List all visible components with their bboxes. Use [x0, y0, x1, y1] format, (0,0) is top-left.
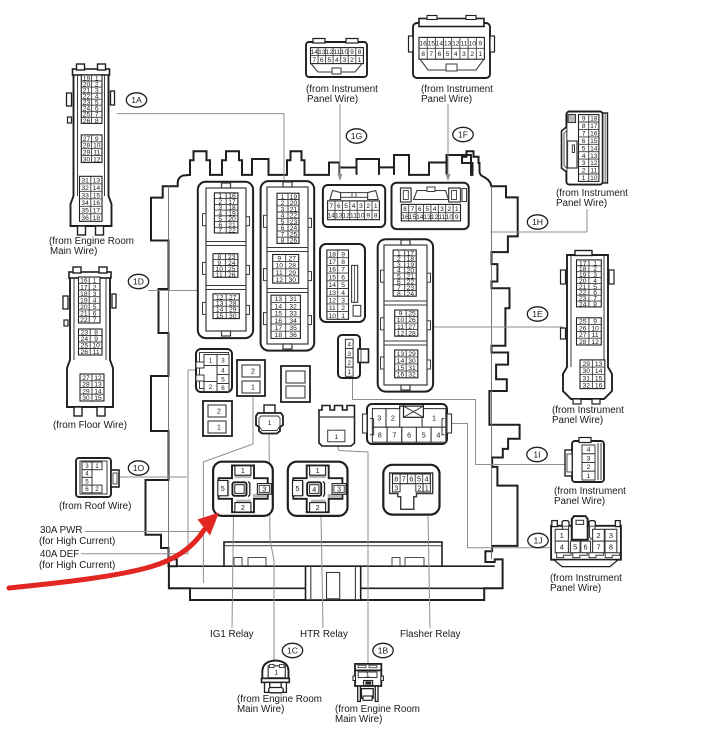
svg-text:2: 2 — [341, 305, 345, 312]
svg-text:30: 30 — [408, 358, 416, 365]
svg-text:5: 5 — [573, 543, 577, 552]
svg-text:1F: 1F — [458, 130, 468, 140]
svg-text:10: 10 — [341, 49, 349, 56]
svg-text:4: 4 — [352, 203, 356, 210]
svg-text:7: 7 — [329, 203, 333, 210]
svg-text:9: 9 — [341, 251, 345, 258]
svg-text:16: 16 — [329, 267, 337, 274]
svg-text:1: 1 — [366, 672, 370, 679]
svg-text:IG1 Relay: IG1 Relay — [210, 629, 254, 640]
svg-text:Panel Wire): Panel Wire) — [421, 94, 472, 105]
svg-text:5: 5 — [341, 282, 345, 289]
svg-text:6: 6 — [584, 543, 588, 552]
svg-text:13: 13 — [590, 153, 598, 160]
svg-text:16: 16 — [93, 200, 101, 207]
svg-text:1A: 1A — [131, 95, 142, 105]
svg-text:2: 2 — [217, 409, 221, 416]
svg-text:6: 6 — [221, 385, 225, 392]
svg-text:11: 11 — [461, 40, 468, 47]
svg-text:4: 4 — [312, 485, 316, 494]
svg-text:1C: 1C — [287, 646, 298, 656]
svg-text:9: 9 — [478, 40, 482, 47]
svg-text:6: 6 — [582, 138, 586, 145]
svg-text:1: 1 — [241, 466, 245, 475]
svg-text:1B: 1B — [378, 646, 389, 656]
svg-text:14: 14 — [436, 40, 444, 47]
svg-text:Panel Wire): Panel Wire) — [550, 583, 601, 594]
svg-text:1E: 1E — [532, 309, 543, 319]
svg-text:16: 16 — [595, 382, 603, 389]
svg-text:17: 17 — [275, 325, 283, 332]
svg-text:13: 13 — [595, 361, 603, 368]
svg-text:7: 7 — [218, 228, 222, 235]
svg-text:6: 6 — [337, 203, 341, 210]
svg-text:(from Roof Wire): (from Roof Wire) — [59, 501, 131, 512]
svg-text:15: 15 — [590, 138, 598, 145]
svg-text:24: 24 — [579, 301, 587, 308]
svg-text:11: 11 — [590, 168, 597, 175]
svg-text:10: 10 — [468, 40, 476, 47]
svg-text:34: 34 — [81, 200, 89, 207]
svg-text:16: 16 — [419, 40, 427, 47]
svg-text:12: 12 — [591, 339, 599, 346]
svg-text:22: 22 — [80, 317, 88, 324]
svg-text:3: 3 — [462, 51, 466, 58]
svg-text:28: 28 — [579, 339, 587, 346]
svg-text:3: 3 — [582, 160, 586, 167]
svg-text:33: 33 — [289, 311, 297, 318]
svg-text:2: 2 — [470, 51, 474, 58]
svg-text:2: 2 — [448, 206, 452, 213]
svg-text:4: 4 — [582, 153, 586, 160]
svg-text:7: 7 — [93, 317, 97, 324]
svg-text:5: 5 — [328, 57, 332, 64]
svg-text:6: 6 — [407, 431, 411, 440]
svg-text:2: 2 — [596, 531, 600, 540]
svg-text:10: 10 — [446, 214, 454, 221]
svg-text:14: 14 — [595, 368, 603, 375]
svg-text:3: 3 — [85, 463, 89, 470]
svg-text:5: 5 — [296, 484, 300, 493]
svg-text:26: 26 — [228, 272, 236, 279]
svg-text:8: 8 — [397, 291, 401, 298]
svg-text:35: 35 — [81, 208, 89, 215]
svg-text:10: 10 — [357, 212, 365, 219]
svg-text:12: 12 — [431, 214, 439, 221]
svg-text:27: 27 — [288, 256, 296, 263]
svg-text:6: 6 — [85, 486, 89, 493]
svg-text:11: 11 — [350, 212, 357, 219]
svg-text:28: 28 — [288, 263, 296, 270]
svg-text:1: 1 — [582, 175, 586, 182]
svg-text:2: 2 — [366, 203, 370, 210]
svg-text:2: 2 — [391, 413, 395, 422]
svg-text:17: 17 — [590, 123, 598, 130]
svg-text:30: 30 — [82, 395, 90, 402]
svg-text:3: 3 — [341, 298, 345, 305]
svg-text:8: 8 — [341, 259, 345, 266]
svg-text:2: 2 — [417, 483, 421, 492]
svg-text:Panel Wire): Panel Wire) — [552, 415, 603, 426]
svg-text:5: 5 — [582, 145, 586, 152]
svg-text:8: 8 — [378, 431, 382, 440]
svg-text:2: 2 — [316, 503, 320, 512]
svg-text:3: 3 — [343, 57, 347, 64]
svg-text:9: 9 — [350, 49, 354, 56]
svg-text:5: 5 — [417, 474, 421, 483]
svg-text:Panel Wire): Panel Wire) — [307, 94, 358, 105]
svg-text:22: 22 — [228, 228, 236, 235]
svg-text:30: 30 — [288, 277, 296, 284]
svg-text:4: 4 — [587, 447, 591, 454]
svg-text:9: 9 — [366, 212, 370, 219]
svg-text:16: 16 — [275, 318, 283, 325]
svg-text:7: 7 — [341, 267, 345, 274]
svg-text:15: 15 — [216, 313, 224, 320]
svg-text:1: 1 — [455, 206, 459, 213]
svg-text:9: 9 — [582, 116, 586, 123]
svg-text:1: 1 — [425, 483, 429, 492]
svg-text:11: 11 — [333, 49, 340, 56]
svg-text:29: 29 — [582, 361, 590, 368]
svg-text:2: 2 — [347, 360, 351, 367]
svg-text:1: 1 — [587, 473, 591, 480]
svg-text:2: 2 — [350, 57, 354, 64]
svg-text:Main Wire): Main Wire) — [335, 714, 382, 725]
svg-text:1H: 1H — [532, 217, 543, 227]
svg-text:3: 3 — [347, 351, 351, 358]
svg-text:1: 1 — [209, 357, 213, 364]
svg-text:31: 31 — [289, 296, 297, 303]
svg-text:3: 3 — [377, 413, 381, 422]
svg-text:5: 5 — [425, 206, 429, 213]
svg-text:7: 7 — [582, 131, 586, 138]
svg-text:2: 2 — [582, 168, 586, 175]
svg-text:33: 33 — [81, 193, 89, 200]
svg-text:13: 13 — [318, 49, 326, 56]
svg-text:12: 12 — [397, 330, 405, 337]
svg-text:32: 32 — [81, 185, 89, 192]
svg-text:12: 12 — [342, 212, 350, 219]
svg-text:8: 8 — [358, 49, 362, 56]
svg-text:1: 1 — [316, 466, 320, 475]
svg-text:1: 1 — [334, 434, 338, 441]
svg-text:30: 30 — [229, 313, 237, 320]
svg-text:15: 15 — [595, 375, 603, 382]
svg-text:14: 14 — [93, 185, 101, 192]
svg-text:5: 5 — [422, 431, 426, 440]
svg-text:4: 4 — [454, 51, 458, 58]
svg-text:5: 5 — [221, 376, 225, 383]
svg-text:34: 34 — [289, 318, 297, 325]
svg-text:31: 31 — [582, 375, 590, 382]
svg-text:9: 9 — [455, 214, 459, 221]
svg-text:8: 8 — [95, 118, 99, 125]
svg-text:32: 32 — [582, 382, 590, 389]
svg-text:3: 3 — [337, 485, 341, 494]
svg-text:31: 31 — [81, 178, 89, 185]
svg-text:5: 5 — [221, 484, 225, 493]
svg-text:Panel Wire): Panel Wire) — [556, 198, 607, 209]
svg-text:17: 17 — [329, 259, 337, 266]
svg-text:24: 24 — [407, 291, 415, 298]
svg-text:12: 12 — [93, 157, 101, 164]
svg-text:1: 1 — [95, 463, 99, 470]
svg-text:12: 12 — [452, 40, 460, 47]
svg-text:10: 10 — [329, 313, 337, 320]
svg-text:26: 26 — [81, 349, 89, 356]
svg-text:1O: 1O — [133, 463, 145, 473]
svg-text:3: 3 — [587, 455, 591, 462]
svg-text:1: 1 — [358, 57, 362, 64]
svg-text:5: 5 — [344, 203, 348, 210]
svg-text:2: 2 — [587, 464, 591, 471]
svg-text:4: 4 — [341, 290, 345, 297]
svg-text:16: 16 — [590, 131, 598, 138]
svg-text:1: 1 — [251, 385, 255, 392]
svg-text:1: 1 — [341, 313, 345, 320]
svg-text:(for High Current): (for High Current) — [39, 536, 115, 547]
svg-text:12: 12 — [275, 277, 283, 284]
svg-text:4: 4 — [335, 57, 339, 64]
svg-text:13: 13 — [275, 296, 283, 303]
svg-text:12: 12 — [329, 298, 337, 305]
svg-text:4: 4 — [433, 206, 437, 213]
svg-text:11: 11 — [439, 214, 446, 221]
svg-text:7: 7 — [402, 474, 406, 483]
svg-text:1G: 1G — [351, 131, 363, 141]
svg-text:6: 6 — [418, 206, 422, 213]
svg-text:1: 1 — [274, 669, 278, 676]
svg-text:30: 30 — [83, 157, 91, 164]
svg-text:Main Wire): Main Wire) — [237, 704, 284, 715]
svg-text:Flasher Relay: Flasher Relay — [400, 629, 461, 640]
svg-text:11: 11 — [216, 272, 223, 279]
svg-text:4: 4 — [221, 367, 225, 374]
svg-text:1: 1 — [347, 369, 351, 376]
svg-text:8: 8 — [374, 212, 378, 219]
svg-text:36: 36 — [289, 332, 297, 339]
svg-text:Panel Wire): Panel Wire) — [554, 496, 605, 507]
svg-text:26: 26 — [83, 118, 91, 125]
svg-text:3: 3 — [262, 485, 266, 494]
svg-text:13: 13 — [444, 40, 452, 47]
svg-text:4: 4 — [85, 471, 89, 478]
svg-text:7: 7 — [596, 543, 600, 552]
svg-text:29: 29 — [288, 270, 296, 277]
svg-text:32: 32 — [289, 303, 297, 310]
svg-text:4: 4 — [347, 342, 351, 349]
svg-text:1: 1 — [268, 420, 272, 427]
svg-text:11: 11 — [329, 305, 336, 312]
svg-text:8: 8 — [421, 51, 425, 58]
svg-text:14: 14 — [590, 145, 598, 152]
svg-text:3: 3 — [221, 357, 225, 364]
svg-text:4: 4 — [425, 474, 429, 483]
svg-text:11: 11 — [93, 349, 100, 356]
svg-text:15: 15 — [275, 311, 283, 318]
svg-text:8: 8 — [609, 543, 613, 552]
svg-text:14: 14 — [275, 303, 283, 310]
svg-text:28: 28 — [408, 330, 416, 337]
svg-text:15: 15 — [329, 274, 337, 281]
svg-text:16: 16 — [397, 372, 405, 379]
svg-text:14: 14 — [397, 358, 405, 365]
svg-text:18: 18 — [275, 332, 283, 339]
svg-text:6: 6 — [438, 51, 442, 58]
svg-text:12: 12 — [326, 49, 334, 56]
svg-text:2: 2 — [251, 369, 255, 376]
svg-text:1: 1 — [217, 425, 221, 432]
svg-text:3: 3 — [440, 206, 444, 213]
svg-text:1: 1 — [432, 413, 436, 422]
svg-text:2: 2 — [95, 486, 99, 493]
svg-text:1I: 1I — [533, 450, 540, 460]
svg-text:18: 18 — [329, 251, 337, 258]
svg-text:15: 15 — [428, 40, 436, 47]
svg-text:8: 8 — [394, 474, 398, 483]
svg-text:(for High Current): (for High Current) — [39, 560, 115, 571]
svg-text:8: 8 — [593, 301, 597, 308]
svg-text:1J: 1J — [533, 536, 542, 546]
svg-text:7: 7 — [411, 206, 415, 213]
svg-text:11: 11 — [276, 270, 283, 277]
svg-text:36: 36 — [81, 215, 89, 222]
svg-text:1: 1 — [560, 531, 564, 540]
svg-text:(from Floor Wire): (from Floor Wire) — [53, 420, 127, 431]
svg-text:17: 17 — [93, 208, 101, 215]
svg-text:3: 3 — [609, 531, 613, 540]
svg-text:1D: 1D — [133, 277, 144, 287]
svg-text:6: 6 — [341, 274, 345, 281]
svg-text:13: 13 — [329, 290, 337, 297]
svg-text:3: 3 — [359, 203, 363, 210]
svg-text:7: 7 — [312, 57, 316, 64]
svg-text:8: 8 — [281, 238, 285, 245]
svg-text:7: 7 — [392, 431, 396, 440]
svg-text:15: 15 — [94, 395, 102, 402]
svg-text:7: 7 — [429, 51, 433, 58]
svg-text:1: 1 — [374, 203, 378, 210]
svg-text:30A PWR: 30A PWR — [40, 525, 82, 536]
svg-text:5: 5 — [446, 51, 450, 58]
svg-text:30: 30 — [582, 368, 590, 375]
svg-text:2: 2 — [241, 503, 245, 512]
svg-text:8: 8 — [582, 123, 586, 130]
svg-text:5: 5 — [85, 478, 89, 485]
svg-text:15: 15 — [93, 193, 101, 200]
svg-text:12: 12 — [590, 160, 598, 167]
svg-text:10: 10 — [275, 263, 283, 270]
svg-text:2: 2 — [209, 384, 213, 391]
svg-text:40A DEF: 40A DEF — [40, 549, 79, 560]
svg-text:4: 4 — [560, 543, 564, 552]
svg-text:3: 3 — [394, 483, 398, 492]
svg-text:10: 10 — [590, 175, 598, 182]
svg-text:18: 18 — [93, 215, 101, 222]
svg-text:4: 4 — [436, 431, 440, 440]
svg-text:35: 35 — [289, 325, 297, 332]
svg-text:18: 18 — [590, 116, 598, 123]
svg-text:14: 14 — [329, 282, 337, 289]
svg-text:6: 6 — [409, 474, 413, 483]
svg-text:13: 13 — [93, 178, 101, 185]
svg-text:9: 9 — [277, 256, 281, 263]
svg-text:HTR Relay: HTR Relay — [300, 629, 348, 640]
svg-text:8: 8 — [403, 206, 407, 213]
svg-text:Main Wire): Main Wire) — [50, 246, 97, 257]
svg-text:6: 6 — [320, 57, 324, 64]
svg-text:1: 1 — [478, 51, 482, 58]
svg-text:26: 26 — [290, 238, 298, 245]
svg-text:32: 32 — [408, 372, 416, 379]
